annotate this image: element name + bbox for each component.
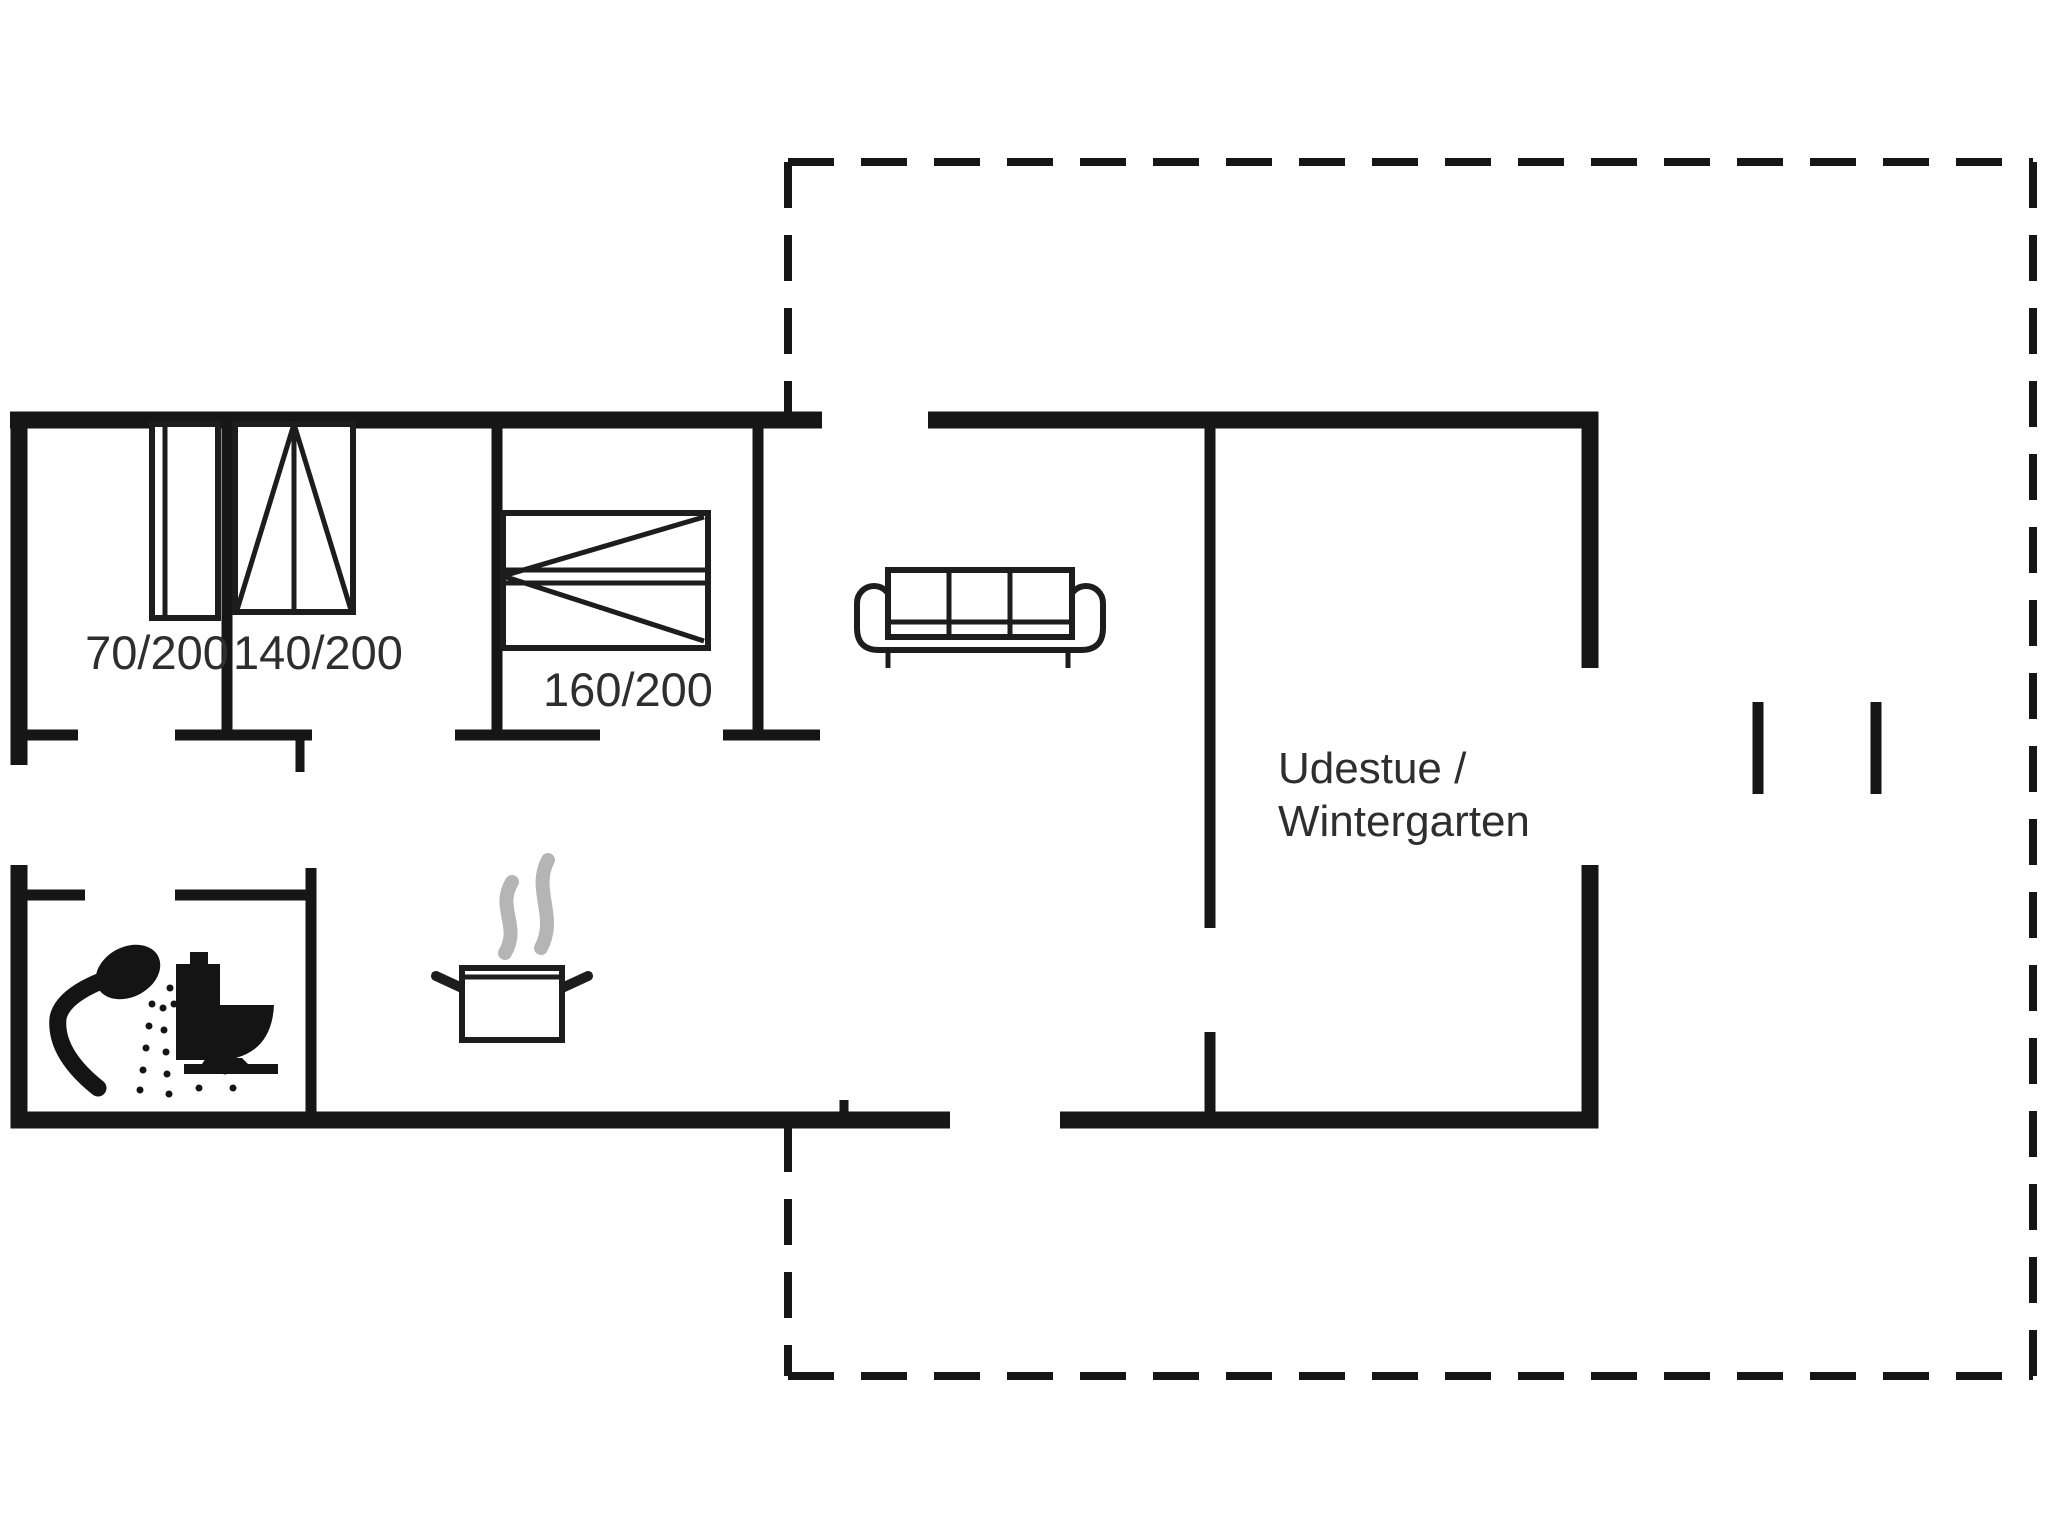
- double-bed-icon: [235, 424, 353, 612]
- bed-160x200-label: 160/200: [543, 663, 713, 716]
- wall-right-lower-and-bottom-right: [1060, 865, 1590, 1120]
- toilet-foot: [184, 1064, 278, 1074]
- sofa-cushion-block: [888, 570, 1072, 637]
- toilet-bowl: [220, 1005, 274, 1060]
- pot-handle-right: [562, 976, 588, 988]
- single-bed-icon: [152, 424, 218, 618]
- shower-head: [86, 934, 170, 1010]
- toilet-knob: [190, 952, 208, 966]
- toilet-tank: [176, 964, 220, 1060]
- steam-wisp-right: [541, 860, 548, 948]
- window-marker-icon: [1758, 702, 1876, 794]
- queen-bed-icon: [503, 513, 708, 648]
- steam-wisp-left: [505, 882, 512, 953]
- bed-70-outline: [152, 424, 218, 618]
- floorplan-page: 70/200 140/200 160/200 Udestue / Winterg…: [0, 0, 2048, 1536]
- steam-icon: [505, 860, 548, 953]
- cooking-pot-icon: [436, 860, 588, 1040]
- pot-handle-left: [436, 976, 462, 988]
- sofa-icon: [857, 570, 1103, 668]
- room-label-line1: Udestue /: [1278, 744, 1467, 793]
- bed-70x200-label: 70/200: [85, 626, 229, 679]
- room-label-line2: Wintergarten: [1278, 797, 1530, 846]
- floorplan-canvas: 70/200 140/200 160/200 Udestue / Winterg…: [0, 0, 2048, 1536]
- toilet-icon: [176, 952, 278, 1074]
- bed-140x200-label: 140/200: [233, 626, 403, 679]
